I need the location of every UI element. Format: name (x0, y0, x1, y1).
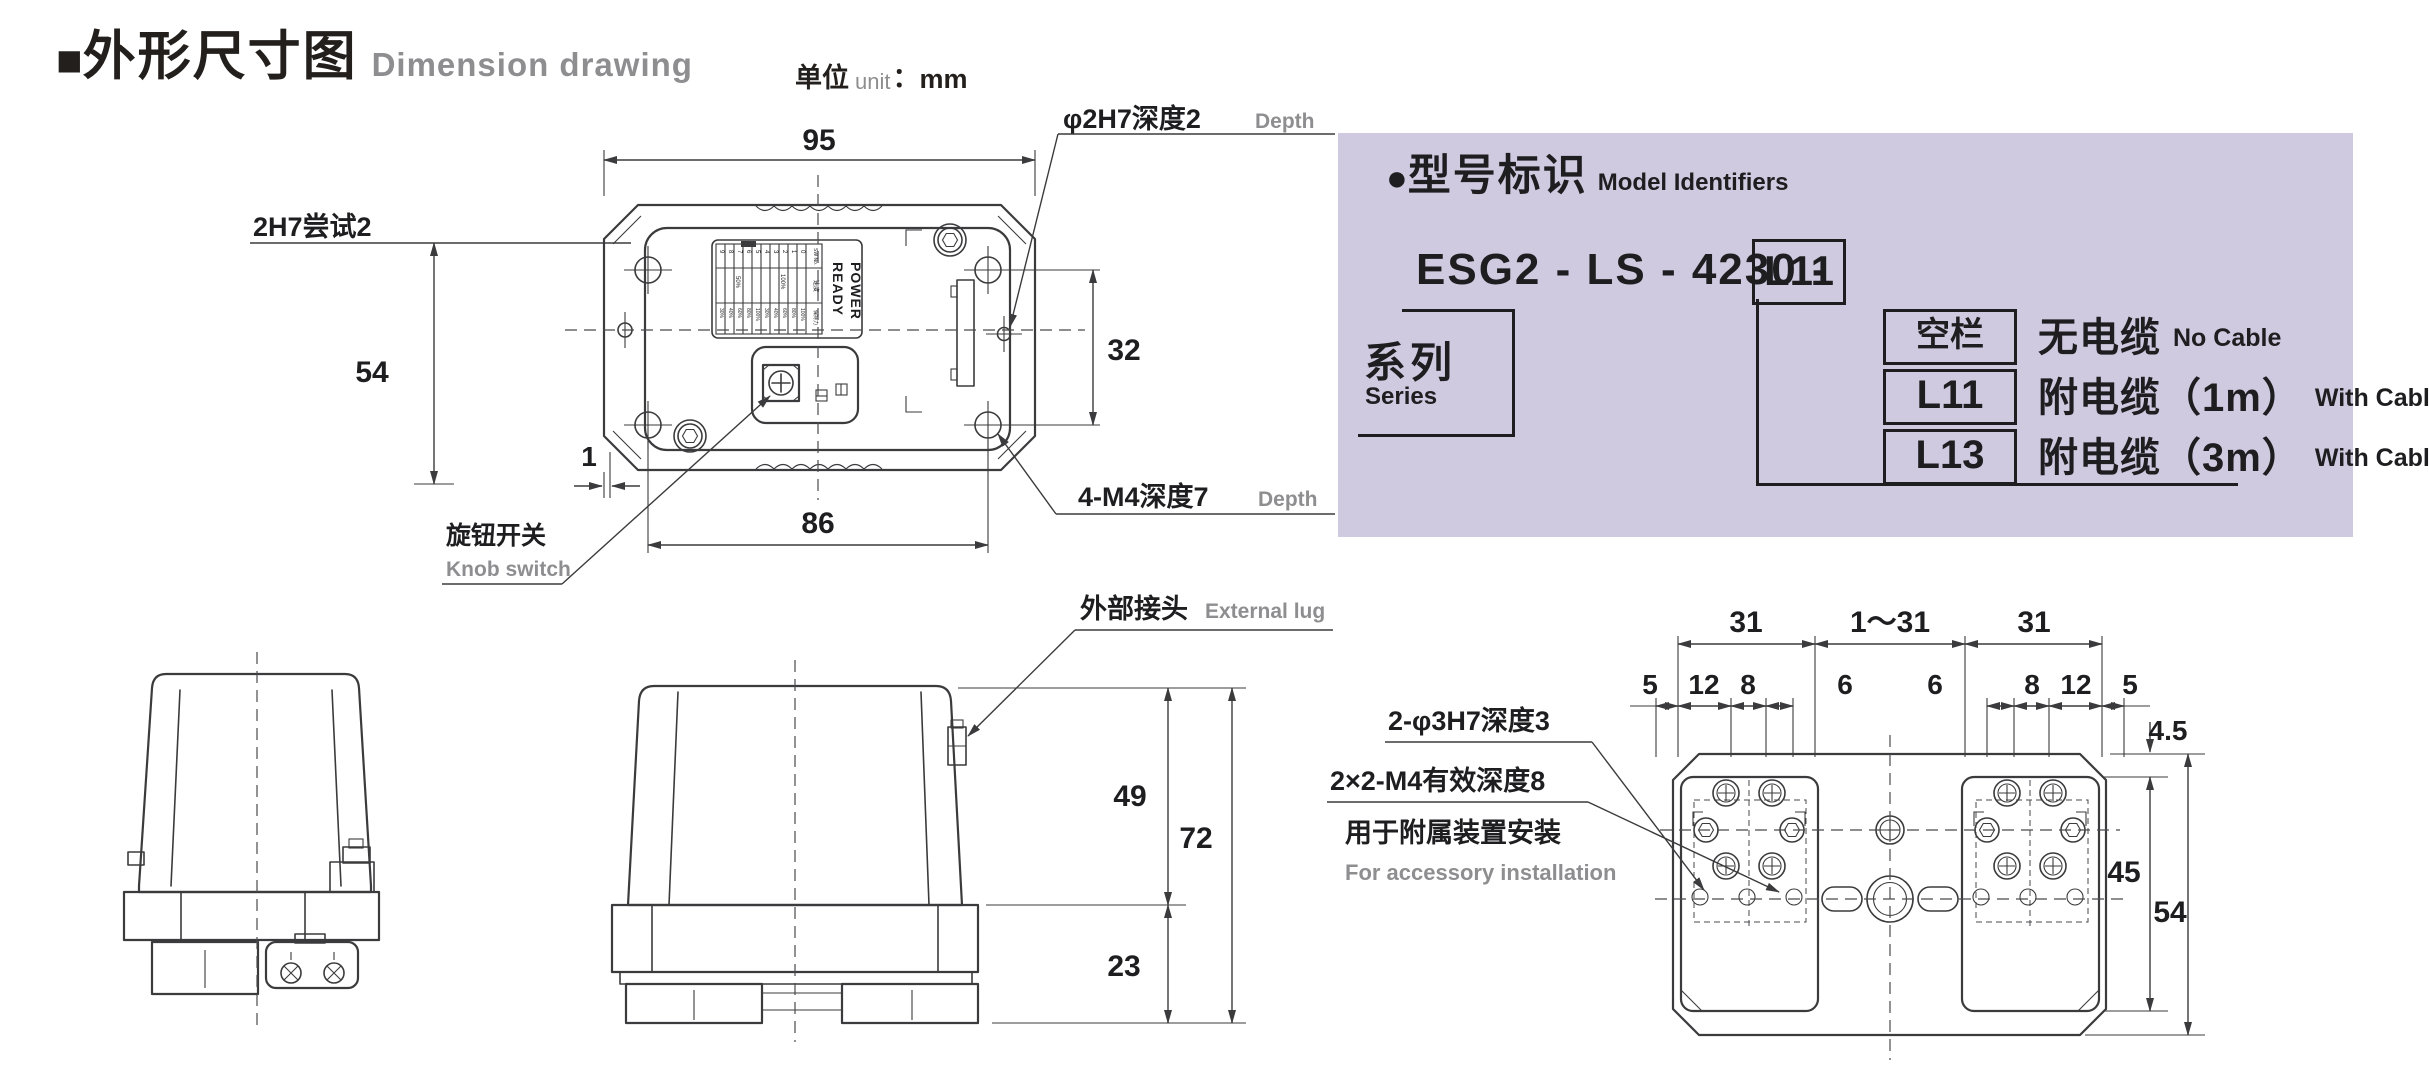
svg-text:80%: 80% (790, 308, 796, 319)
svg-text:45: 45 (2107, 856, 2140, 889)
svg-text:6: 6 (1837, 669, 1853, 700)
option-code-box: L13 (1883, 429, 2017, 485)
dim-86: 86 (648, 440, 988, 553)
code-connector-line (1756, 299, 1759, 485)
dip-digit: 3 (772, 250, 778, 254)
svg-text:1～31: 1～31 (1850, 606, 1930, 639)
side-view-flange (124, 892, 379, 940)
svg-text:外部接头: 外部接头 (1080, 593, 1188, 624)
svg-text:4.5: 4.5 (2149, 715, 2188, 746)
svg-text:External lug: External lug (1205, 600, 1325, 623)
svg-text:100%: 100% (799, 308, 805, 321)
side-connector (330, 839, 374, 892)
panel-title-en: Model Identifiers (1598, 169, 1789, 198)
label-knob: 旋钮开关 Knob switch (442, 396, 770, 584)
power-label: POWER (848, 262, 864, 320)
svg-text:12: 12 (2060, 669, 2091, 700)
front-view-foot (842, 984, 978, 1023)
model-identifier-panel: ● 型号标识 Model Identifiers ESG2 - LS - 423… (1338, 133, 2353, 537)
switch-mark (741, 241, 756, 247)
dip-digit: 5 (754, 250, 760, 254)
panel-title: ● 型号标识 Model Identifiers (1386, 155, 1788, 198)
svg-text:2-φ3H7深度3: 2-φ3H7深度3 (1388, 705, 1550, 736)
accessory-bracket (266, 934, 358, 988)
svg-text:54: 54 (355, 356, 389, 389)
bottom-view: 31 1～31 31 5 12 8 6 6 8 (1327, 606, 2205, 1060)
dim-54: 54 (355, 243, 454, 484)
svg-text:23: 23 (1107, 950, 1140, 983)
svg-text:86: 86 (801, 507, 834, 540)
series-label-cn: 系列 (1364, 329, 1456, 390)
option-code-box: L11 (1883, 369, 2017, 425)
svg-text:32: 32 (1107, 334, 1140, 367)
svg-text:12: 12 (1688, 669, 1719, 700)
series-label-en: Series (1365, 383, 1437, 411)
svg-text:100%: 100% (754, 308, 760, 321)
dip-digit: 7 (736, 250, 742, 254)
dim-32: 32 (1002, 270, 1141, 425)
dim-95: 95 (604, 124, 1035, 196)
svg-text:31: 31 (1729, 606, 1762, 639)
dip-digit: 4 (763, 250, 769, 254)
svg-text:54: 54 (2153, 896, 2187, 929)
screw-x-icon (324, 963, 344, 983)
speed-low: 50% (734, 276, 740, 289)
svg-text:6: 6 (1927, 669, 1943, 700)
option-desc: 附电缆（3m） With Cable (2038, 429, 2429, 479)
option-desc: 无电缆 No Cable (2038, 309, 2281, 359)
svg-text:72: 72 (1179, 822, 1212, 855)
front-view-plate (620, 972, 972, 984)
dim-1: 1 (574, 441, 640, 498)
front-view: 外部接头 External lug 49 72 23 (612, 593, 1333, 1042)
top-view-inner-panel (645, 228, 1010, 450)
option-desc: 附电缆（1m） With Cable (2038, 369, 2429, 419)
panel-title-cn: 型号标识 (1408, 155, 1588, 198)
option-code-box: 空栏 (1883, 309, 2017, 365)
svg-text:用于附属装置安装: 用于附属装置安装 (1345, 818, 1561, 848)
top-view: 9 8 7 6 5 4 3 2 1 0 50% 100% 30% 40% 60%… (250, 103, 1335, 584)
dim-right-stack: 4.5 45 54 (2085, 715, 2205, 1035)
dip-digit: 6 (745, 250, 751, 254)
svg-text:2×2-M4有效深度8: 2×2-M4有效深度8 (1330, 765, 1545, 796)
svg-text:30%: 30% (718, 308, 724, 319)
svg-text:8: 8 (2024, 669, 2040, 700)
sw-no-label: SW No. (812, 248, 818, 265)
model-code-box: L11 (1752, 239, 1846, 305)
svg-text:95: 95 (802, 124, 835, 157)
edge-connector (951, 280, 974, 386)
label-pin-right: φ2H7深度2 Depth (1010, 103, 1335, 327)
dip-digit: 8 (727, 250, 733, 254)
svg-text:40%: 40% (727, 308, 733, 319)
series-bracket-line (1402, 309, 1514, 312)
screw-x-icon (281, 963, 301, 983)
svg-text:5: 5 (2122, 669, 2138, 700)
ready-label: READY (830, 262, 846, 316)
svg-text:1: 1 (581, 441, 597, 472)
svg-text:80%: 80% (745, 308, 751, 319)
svg-text:5: 5 (1642, 669, 1658, 700)
svg-text:49: 49 (1113, 780, 1146, 813)
label-screws: 4-M4深度7 Depth (998, 434, 1335, 514)
svg-text:60%: 60% (736, 308, 742, 319)
svg-text:φ2H7深度2: φ2H7深度2 (1063, 103, 1201, 134)
knob-switch-panel (752, 347, 858, 423)
series-bracket-line (1512, 309, 1515, 437)
dip-digit: 9 (718, 250, 724, 254)
svg-text:40%: 40% (772, 308, 778, 319)
side-view (124, 652, 379, 1032)
external-lug-part (948, 720, 966, 765)
svg-text:Depth: Depth (1258, 488, 1318, 511)
svg-text:Knob switch: Knob switch (446, 558, 571, 581)
svg-text:60%: 60% (781, 308, 787, 319)
label-m4-holes: 2×2-M4有效深度8 用于附属装置安装 For accessory insta… (1327, 765, 1779, 892)
dip-switch-plate: 9 8 7 6 5 4 3 2 1 0 50% 100% 30% 40% 60%… (712, 240, 864, 338)
speed-label: 速度 (812, 280, 820, 292)
dim-49-72-23: 49 72 23 (958, 688, 1246, 1023)
svg-text:4-M4深度7: 4-M4深度7 (1078, 481, 1209, 512)
label-pin-left: 2H7尝试2 (250, 212, 631, 243)
svg-text:31: 31 (2017, 606, 2050, 639)
dip-digit: 2 (781, 250, 787, 254)
dip-digit: 1 (790, 250, 796, 254)
svg-text:30%: 30% (763, 308, 769, 319)
svg-text:For accessory installation: For accessory installation (1345, 860, 1616, 885)
label-external-lug: 外部接头 External lug (968, 593, 1333, 736)
bullet-icon: ● (1386, 157, 1408, 198)
speed-high: 100% (779, 274, 785, 290)
series-bracket-line (1358, 434, 1515, 437)
svg-text:Depth: Depth (1255, 110, 1315, 133)
svg-text:8: 8 (1740, 669, 1756, 700)
svg-text:旋钮开关: 旋钮开关 (446, 521, 546, 550)
catalog-page: ■ 外形尺寸图 Dimension drawing 单位 unit ： mm (0, 0, 2429, 1071)
dip-digit: 0 (799, 250, 805, 254)
svg-text:2H7尝试2: 2H7尝试2 (253, 212, 372, 242)
